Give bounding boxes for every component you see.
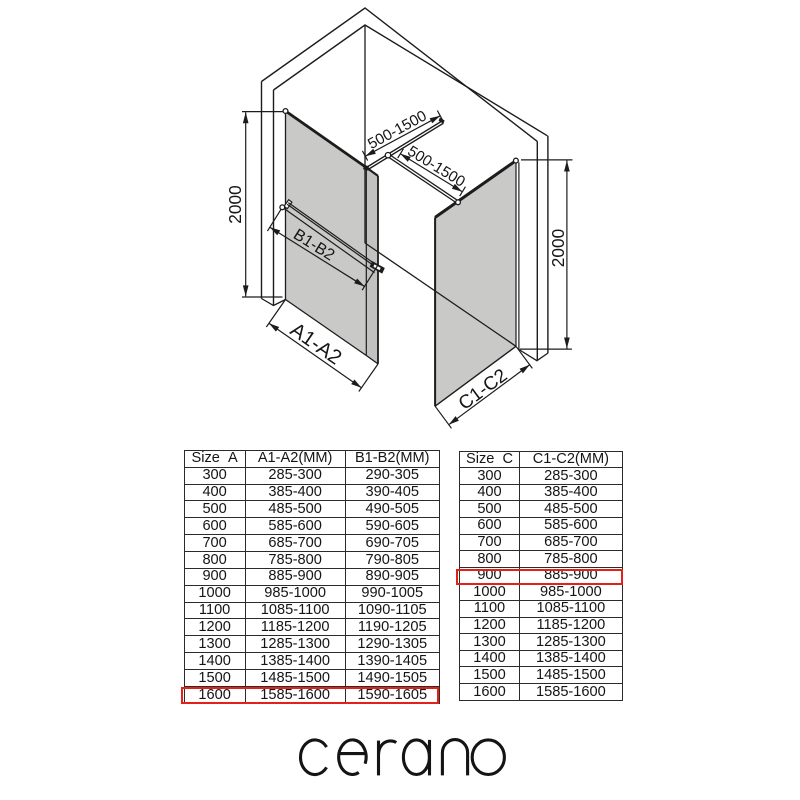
svg-text:2000: 2000 <box>225 185 245 223</box>
svg-text:500-1500: 500-1500 <box>404 143 468 191</box>
svg-text:2000: 2000 <box>548 229 568 267</box>
